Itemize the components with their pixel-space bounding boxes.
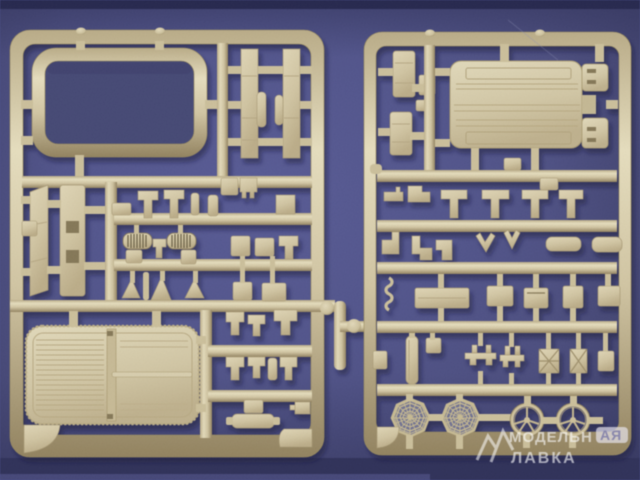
svg-text:ЛАВКА: ЛАВКА bbox=[511, 450, 577, 467]
svg-text:АЯ: АЯ bbox=[600, 427, 622, 443]
svg-text:МОДЕЛЬН: МОДЕЛЬН bbox=[509, 429, 593, 446]
